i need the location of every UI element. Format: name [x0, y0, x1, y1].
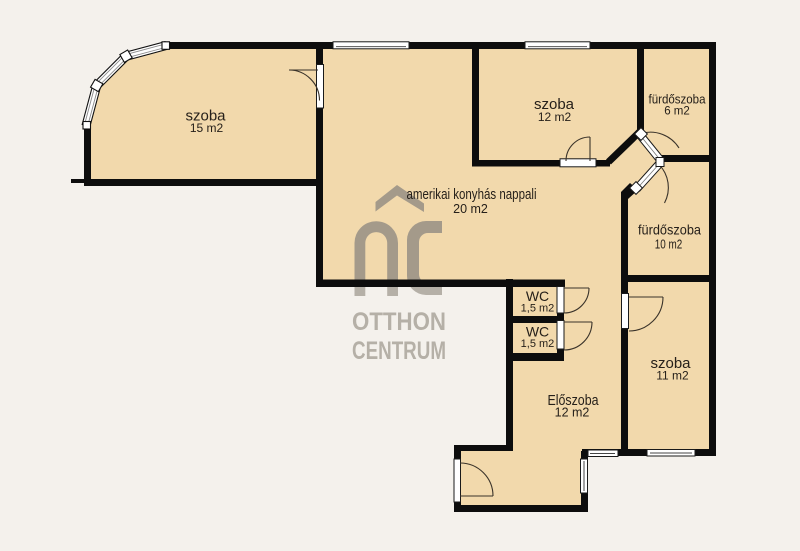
- svg-text:1,5 m2: 1,5 m2: [521, 338, 555, 350]
- svg-text:fürdőszoba: fürdőszoba: [649, 92, 707, 107]
- svg-text:11 m2: 11 m2: [656, 369, 689, 383]
- svg-text:OTTHON: OTTHON: [352, 308, 446, 336]
- svg-text:10 m2: 10 m2: [655, 238, 683, 252]
- svg-text:CENTRUM: CENTRUM: [352, 337, 446, 365]
- svg-text:6 m2: 6 m2: [664, 106, 690, 118]
- svg-text:amerikai konyhás nappali: amerikai konyhás nappali: [407, 186, 537, 203]
- svg-text:1,5 m2: 1,5 m2: [521, 303, 555, 315]
- svg-text:12 m2: 12 m2: [555, 406, 590, 420]
- svg-text:15 m2: 15 m2: [190, 121, 224, 135]
- svg-text:12 m2: 12 m2: [538, 110, 572, 124]
- svg-text:20 m2: 20 m2: [453, 202, 488, 216]
- svg-text:fürdőszoba: fürdőszoba: [638, 222, 701, 238]
